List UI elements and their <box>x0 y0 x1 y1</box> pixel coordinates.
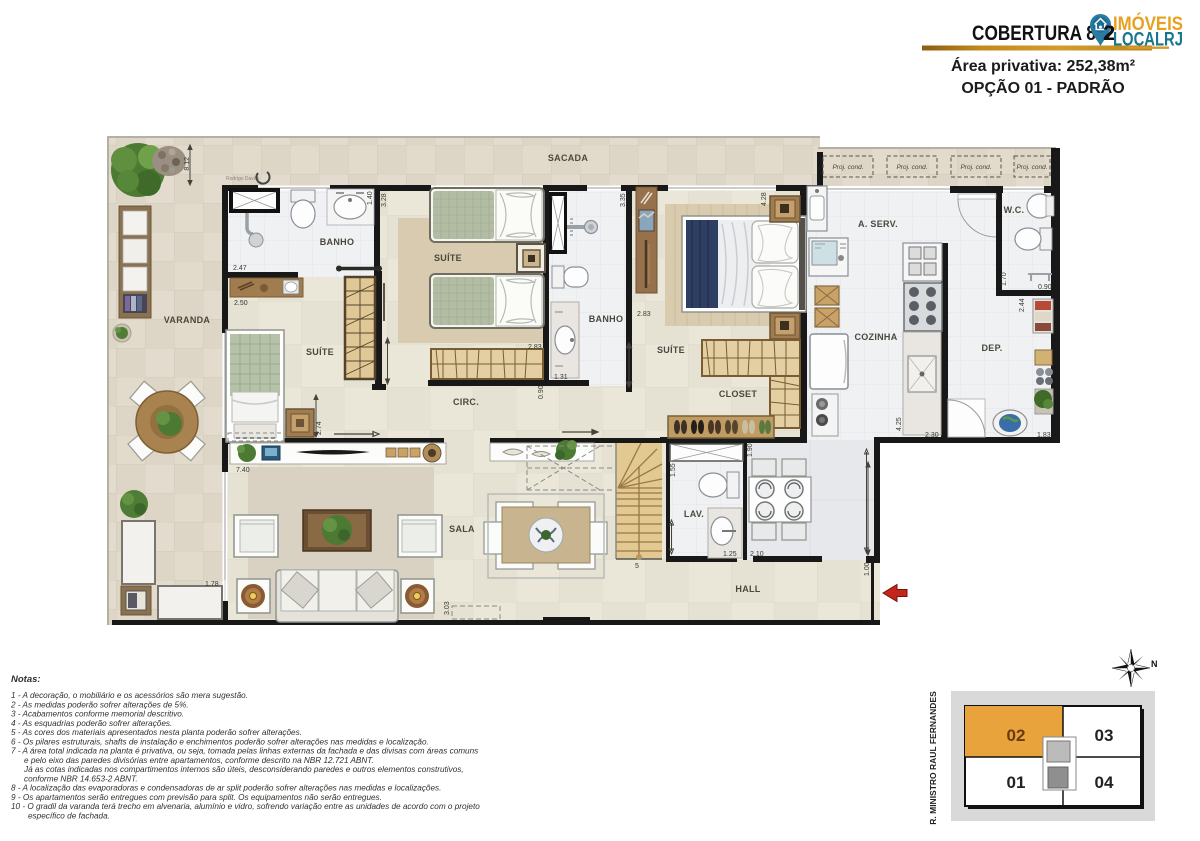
svg-text:1.00: 1.00 <box>864 562 871 576</box>
svg-text:R. MINISTRO RAUL FERNANDES: R. MINISTRO RAUL FERNANDES <box>928 691 938 825</box>
svg-text:1.31: 1.31 <box>554 374 568 381</box>
svg-text:8 - A localização das evaporad: 8 - A localização das evaporadoras e con… <box>11 784 441 793</box>
svg-text:5: 5 <box>635 563 639 570</box>
svg-text:9 - Os apartamentos serão entr: 9 - Os apartamentos serão entregues com … <box>11 793 382 802</box>
svg-text:1.70: 1.70 <box>1001 272 1008 286</box>
svg-text:2.83: 2.83 <box>528 344 542 351</box>
svg-text:N: N <box>1151 659 1158 669</box>
svg-text:7.40: 7.40 <box>236 467 250 474</box>
svg-text:Já as cotas indicadas nos comp: Já as cotas indicadas nos compartimentos… <box>23 765 464 774</box>
svg-text:Proj. cond.: Proj. cond. <box>896 164 927 171</box>
svg-text:0.90: 0.90 <box>1038 284 1052 291</box>
svg-text:SACADA: SACADA <box>548 153 589 163</box>
svg-text:BANHO: BANHO <box>589 314 624 324</box>
svg-text:VARANDA: VARANDA <box>164 315 211 325</box>
svg-text:1.90: 1.90 <box>747 443 754 457</box>
svg-text:LAV.: LAV. <box>684 509 704 519</box>
svg-text:3 - Acabamentos conforme memor: 3 - Acabamentos conforme memorial descri… <box>11 710 184 719</box>
svg-text:01: 01 <box>1007 773 1026 792</box>
svg-text:Rodrigo Davila: Rodrigo Davila <box>226 176 259 182</box>
svg-text:04: 04 <box>1095 773 1114 792</box>
svg-text:Notas:: Notas: <box>11 674 41 685</box>
svg-text:1.25: 1.25 <box>723 551 737 558</box>
svg-text:BANHO: BANHO <box>320 237 355 247</box>
svg-text:2.83: 2.83 <box>637 311 651 318</box>
svg-text:Proj. cond.: Proj. cond. <box>960 164 991 171</box>
svg-text:CIRC.: CIRC. <box>453 397 479 407</box>
svg-text:1.78: 1.78 <box>205 581 219 588</box>
svg-text:e pelo eixo das paredes divisó: e pelo eixo das paredes divisórias entre… <box>24 756 374 765</box>
svg-text:SUÍTE: SUÍTE <box>657 345 685 355</box>
svg-text:8.12: 8.12 <box>184 157 191 171</box>
svg-text:1.83: 1.83 <box>1037 432 1051 439</box>
svg-text:específico de fachada.: específico de fachada. <box>28 812 110 821</box>
svg-text:4.28: 4.28 <box>761 192 768 206</box>
svg-text:1.55: 1.55 <box>670 463 677 477</box>
svg-text:6 - Os pilares estruturais, sh: 6 - Os pilares estruturais, shafts de in… <box>11 737 429 746</box>
svg-text:Área privativa: 252,38m²: Área privativa: 252,38m² <box>951 56 1135 75</box>
svg-text:02: 02 <box>1007 726 1026 745</box>
svg-text:OPÇÃO 01 - PADRÃO: OPÇÃO 01 - PADRÃO <box>961 77 1124 97</box>
svg-text:5 - As cores dos materiais apr: 5 - As cores dos materiais apresentados … <box>11 728 302 737</box>
svg-text:2.47: 2.47 <box>233 265 247 272</box>
svg-text:CLOSET: CLOSET <box>719 389 758 399</box>
svg-text:DEP.: DEP. <box>981 343 1002 353</box>
svg-text:Proj. cond.: Proj. cond. <box>832 164 863 171</box>
svg-text:COZINHA: COZINHA <box>854 332 897 342</box>
svg-text:2.10: 2.10 <box>750 551 764 558</box>
svg-text:3.03: 3.03 <box>444 601 451 615</box>
svg-text:SALA: SALA <box>449 524 475 534</box>
svg-text:2: 2 <box>1103 22 1115 45</box>
svg-text:SUÍTE: SUÍTE <box>434 253 462 263</box>
svg-text:10 - O gradil da varanda terá: 10 - O gradil da varanda terá trecho em … <box>11 802 480 811</box>
svg-text:A. SERV.: A. SERV. <box>858 219 898 229</box>
svg-text:4 - As esquadrias poderão sofr: 4 - As esquadrias poderão sofrer alteraç… <box>11 719 172 728</box>
svg-text:conforme NBR 14.653-2 ABNT.: conforme NBR 14.653-2 ABNT. <box>24 774 138 783</box>
svg-text:03: 03 <box>1095 726 1114 745</box>
svg-text:0.90: 0.90 <box>538 385 545 399</box>
svg-text:2.30: 2.30 <box>925 432 939 439</box>
svg-text:2.50: 2.50 <box>234 300 248 307</box>
svg-text:4.25: 4.25 <box>896 417 903 431</box>
svg-text:Proj. cond.: Proj. cond. <box>1016 164 1047 171</box>
svg-text:1 - A decoração, o mobiliário: 1 - A decoração, o mobiliário e os acess… <box>11 691 248 700</box>
svg-text:3.35: 3.35 <box>620 193 627 207</box>
svg-text:2.74: 2.74 <box>316 421 323 435</box>
svg-text:3.28: 3.28 <box>381 193 388 207</box>
svg-text:W.C.: W.C. <box>1004 205 1025 215</box>
svg-text:7 - A área total indicada na p: 7 - A área total indicada na planta é pr… <box>11 747 478 756</box>
svg-text:HALL: HALL <box>735 584 760 594</box>
svg-text:SUÍTE: SUÍTE <box>306 347 334 357</box>
svg-text:1.40: 1.40 <box>367 191 374 205</box>
svg-text:2 - As medidas poderão sofrer: 2 - As medidas poderão sofrer alterações… <box>10 700 189 709</box>
svg-text:2.44: 2.44 <box>1019 298 1026 312</box>
